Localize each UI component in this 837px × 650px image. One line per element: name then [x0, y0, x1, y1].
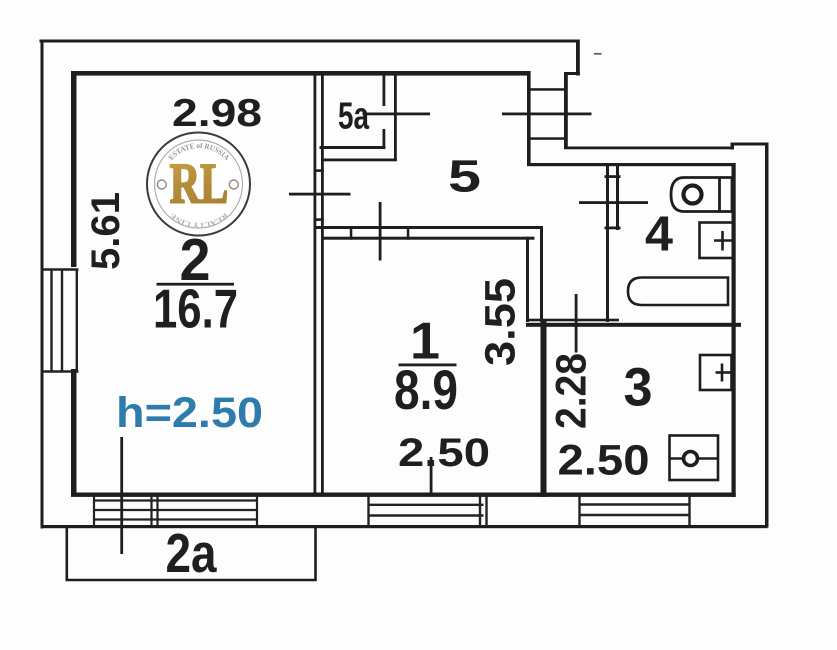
svg-text:8.9: 8.9	[394, 358, 458, 421]
svg-text:5.61: 5.61	[84, 192, 128, 270]
svg-text:2a: 2a	[166, 522, 217, 584]
svg-text:2.98: 2.98	[172, 92, 262, 135]
svg-text:2.50: 2.50	[398, 431, 490, 475]
svg-text:h=2.50: h=2.50	[116, 389, 263, 437]
svg-text:RL: RL	[170, 151, 229, 215]
svg-text:2.28: 2.28	[548, 353, 596, 429]
svg-text:2.50: 2.50	[558, 437, 650, 485]
svg-text:3: 3	[624, 358, 653, 418]
svg-text:5a: 5a	[338, 96, 370, 138]
svg-text:5: 5	[448, 151, 481, 202]
svg-text:3.55: 3.55	[477, 278, 525, 366]
svg-text:4: 4	[645, 208, 673, 262]
svg-text:16.7: 16.7	[153, 278, 238, 340]
